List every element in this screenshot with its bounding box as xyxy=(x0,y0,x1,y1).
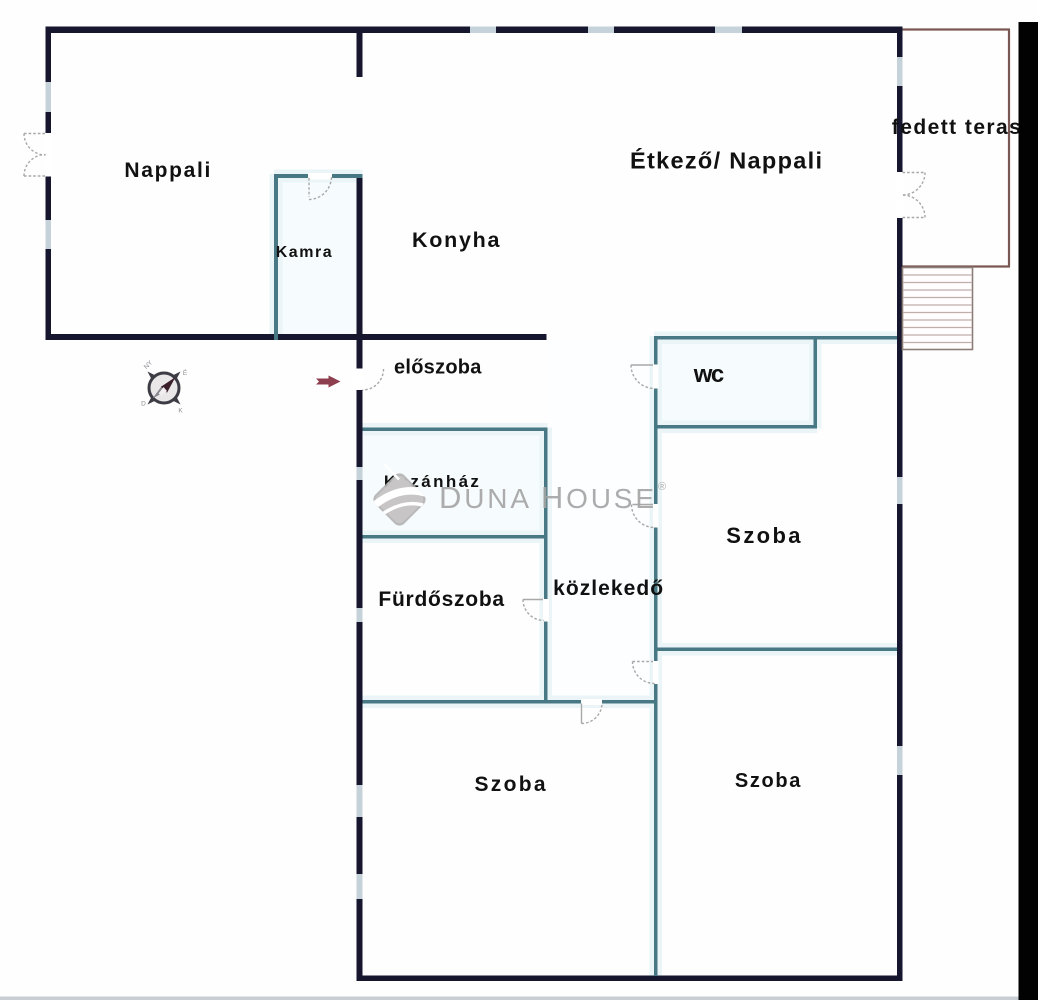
svg-text:előszoba: előszoba xyxy=(394,356,482,378)
svg-text:Kamra: Kamra xyxy=(276,244,332,261)
svg-text:Étkező/ Nappali: Étkező/ Nappali xyxy=(630,146,822,173)
svg-text:®: ® xyxy=(658,481,666,493)
svg-text:Szoba: Szoba xyxy=(726,523,801,548)
svg-text:fedett terasz: fedett terasz xyxy=(892,116,1033,139)
svg-text:Fürdőszoba: Fürdőszoba xyxy=(378,588,504,611)
svg-text:É: É xyxy=(183,368,188,377)
svg-text:közlekedő: közlekedő xyxy=(553,577,663,600)
svg-text:K: K xyxy=(178,408,183,415)
svg-text:D: D xyxy=(141,401,146,408)
svg-text:Szoba: Szoba xyxy=(735,770,801,792)
svg-text:Szoba: Szoba xyxy=(475,773,546,796)
svg-text:wc: wc xyxy=(693,361,725,388)
svg-text:DUNA HOUSE: DUNA HOUSE xyxy=(439,480,655,515)
svg-text:Konyha: Konyha xyxy=(412,228,501,252)
svg-text:Nappali: Nappali xyxy=(124,159,210,182)
